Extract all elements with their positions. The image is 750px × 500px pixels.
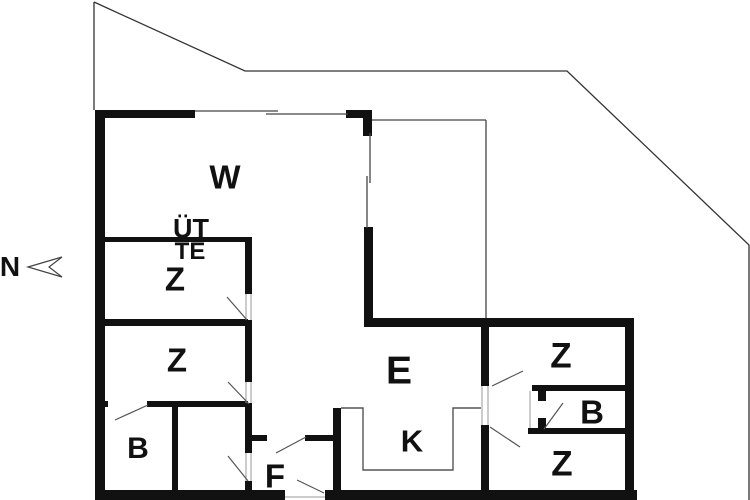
wall-e-right-b [481, 425, 489, 500]
wall-zb-stub [538, 391, 546, 401]
wall-v250-b [245, 320, 252, 382]
wall-v250-a [245, 237, 252, 294]
wall-top [95, 110, 195, 118]
wall-b-divider [172, 407, 178, 490]
room-label-f: F [265, 460, 285, 493]
wall-bz-divider [528, 428, 625, 434]
room-label-z4: Z [551, 447, 572, 482]
wall-z-divider [98, 319, 248, 326]
room-label-e: E [386, 352, 412, 391]
wall-left [95, 110, 105, 500]
wall-zb-divider [532, 385, 625, 391]
wall-k-left [333, 408, 341, 500]
compass-label: N [0, 253, 20, 281]
floor-plan: N W ÜT TE Z Z B F E K Z B Z [0, 0, 750, 500]
wall-b-top-b [147, 401, 248, 407]
wall-v250-c [245, 403, 252, 453]
wall-v250-d [245, 481, 252, 493]
wall-f-top-b [305, 435, 334, 441]
wall-spine [364, 318, 633, 327]
room-label-w: W [209, 161, 240, 194]
wall-bz-stub [538, 418, 546, 428]
wall-terrace-left [364, 227, 373, 326]
room-label-z2: Z [167, 344, 187, 377]
room-label-z3: Z [550, 339, 571, 374]
wall-e-right-a [481, 318, 489, 386]
north-arrow-icon [28, 257, 62, 277]
wall-bottom-left [95, 490, 285, 500]
wall-right [625, 318, 634, 500]
room-label-b1: B [127, 434, 149, 464]
walls [95, 110, 637, 500]
floor-plan-drawing [0, 0, 750, 500]
wall-top-corner-v [363, 110, 372, 136]
wall-f-top-a [248, 435, 267, 441]
wall-b-top-a [98, 401, 108, 407]
room-label-z1: Z [165, 263, 185, 296]
room-label-k: K [401, 426, 423, 457]
room-label-b2: B [580, 396, 604, 429]
windows [195, 111, 486, 318]
